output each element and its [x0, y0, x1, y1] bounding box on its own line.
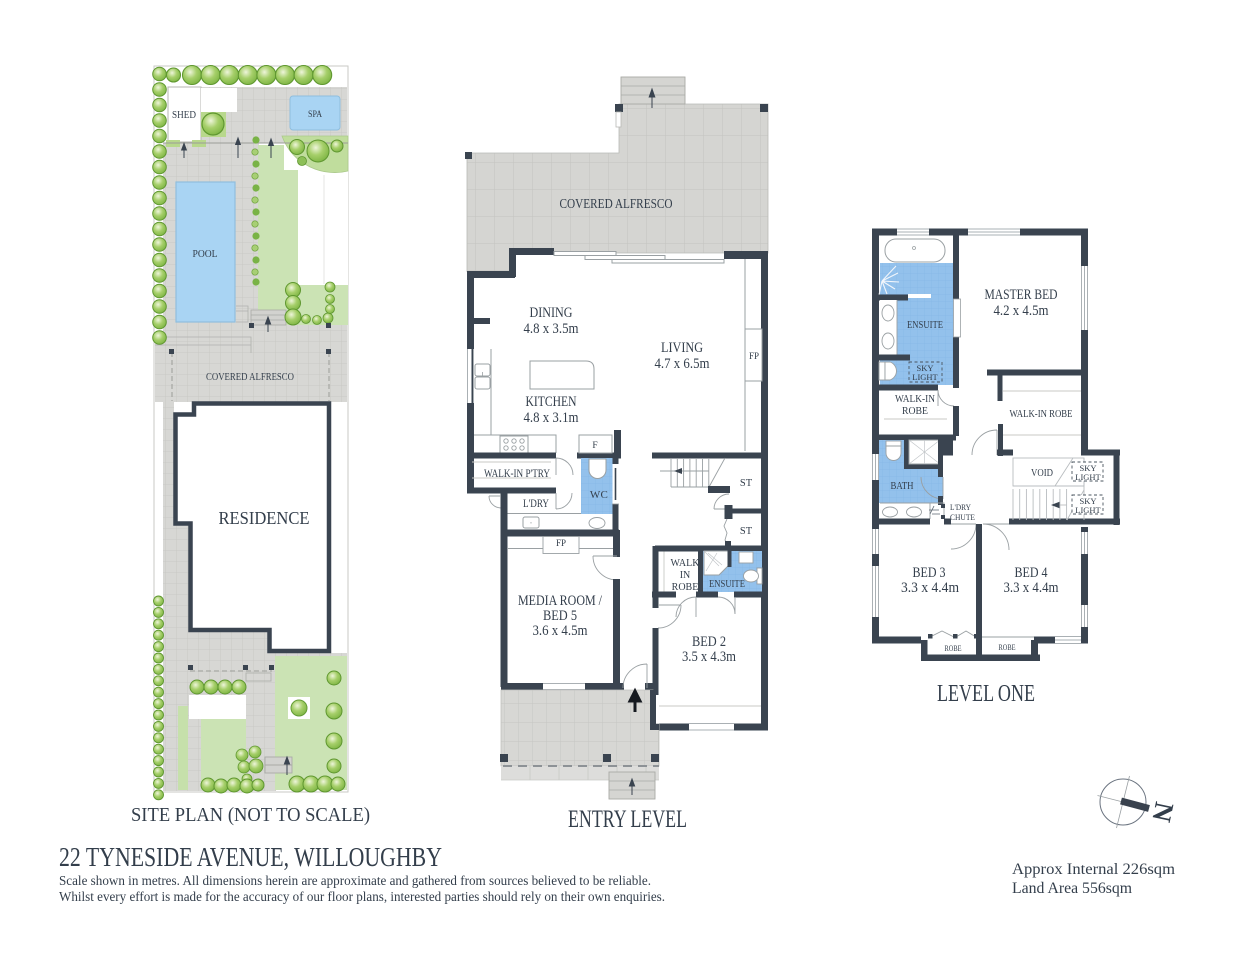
svg-text:ENSUITE: ENSUITE [907, 319, 943, 331]
svg-text:BATH: BATH [891, 480, 914, 492]
svg-text:4.8 x 3.1m: 4.8 x 3.1m [524, 410, 579, 426]
svg-text:BED 2: BED 2 [692, 634, 726, 650]
svg-text:SPA: SPA [308, 110, 322, 120]
svg-text:3.5 x 4.3m: 3.5 x 4.3m [682, 649, 736, 665]
svg-text:MASTER BED: MASTER BED [985, 287, 1058, 303]
svg-text:IN: IN [680, 570, 691, 581]
svg-text:ROBE: ROBE [672, 582, 699, 593]
svg-text:Land Area 556sqm: Land Area 556sqm [1012, 880, 1133, 897]
svg-text:FP: FP [749, 351, 759, 361]
svg-text:ENSUITE: ENSUITE [709, 579, 745, 590]
svg-text:Whilst every effort is made fo: Whilst every effort is made for the accu… [59, 890, 665, 905]
svg-text:Approx Internal 226sqm: Approx Internal 226sqm [1012, 861, 1176, 878]
svg-text:WALK-IN: WALK-IN [895, 394, 935, 405]
svg-text:MEDIA ROOM /: MEDIA ROOM / [518, 593, 603, 609]
svg-text:F: F [592, 441, 597, 451]
svg-text:ST: ST [740, 526, 753, 537]
svg-text:VOID: VOID [1031, 467, 1053, 479]
svg-text:Scale shown in metres. All dim: Scale shown in metres. All dimensions he… [59, 874, 651, 889]
svg-text:COVERED ALFRESCO: COVERED ALFRESCO [206, 372, 294, 383]
svg-text:POOL: POOL [193, 249, 218, 260]
svg-text:LIVING: LIVING [661, 340, 703, 356]
svg-text:BED 4: BED 4 [1015, 565, 1048, 581]
svg-text:3.6 x 4.5m: 3.6 x 4.5m [533, 623, 588, 639]
svg-text:DINING: DINING [530, 305, 573, 321]
svg-text:SITE PLAN (NOT TO SCALE): SITE PLAN (NOT TO SCALE) [131, 804, 370, 826]
svg-text:N: N [1146, 799, 1180, 825]
svg-text:COVERED ALFRESCO: COVERED ALFRESCO [560, 197, 673, 212]
svg-text:WALK-IN ROBE: WALK-IN ROBE [1010, 409, 1073, 420]
svg-text:ROBE: ROBE [945, 643, 962, 653]
svg-text:WALK-IN P'TRY: WALK-IN P'TRY [484, 468, 551, 480]
svg-text:KITCHEN: KITCHEN [526, 394, 577, 410]
svg-text:LEVEL ONE: LEVEL ONE [937, 680, 1035, 707]
svg-text:LIGHT: LIGHT [1075, 505, 1101, 515]
svg-text:L'DRY: L'DRY [950, 502, 971, 512]
svg-text:WALK: WALK [671, 558, 701, 569]
svg-text:4.2 x 4.5m: 4.2 x 4.5m [994, 303, 1049, 319]
svg-text:4.8 x 3.5m: 4.8 x 3.5m [524, 321, 579, 337]
svg-text:FP: FP [556, 538, 566, 548]
svg-text:ST: ST [740, 478, 753, 489]
svg-text:3.3 x 4.4m: 3.3 x 4.4m [901, 580, 959, 596]
svg-text:3.3 x 4.4m: 3.3 x 4.4m [1004, 580, 1059, 596]
svg-text:BED 3: BED 3 [913, 565, 946, 581]
svg-text:CHUTE: CHUTE [950, 512, 975, 522]
svg-text:BED 5: BED 5 [543, 608, 577, 624]
svg-text:ROBE: ROBE [999, 642, 1016, 652]
svg-text:22 TYNESIDE AVENUE, WILLOUGHBY: 22 TYNESIDE AVENUE, WILLOUGHBY [59, 842, 442, 872]
svg-text:RESIDENCE: RESIDENCE [219, 508, 310, 528]
svg-text:LIGHT: LIGHT [912, 372, 938, 382]
svg-text:ENTRY LEVEL: ENTRY LEVEL [568, 806, 687, 833]
svg-text:SHED: SHED [172, 110, 196, 121]
svg-text:LIGHT: LIGHT [1075, 472, 1101, 482]
svg-text:WC: WC [590, 489, 608, 501]
svg-text:4.7 x 6.5m: 4.7 x 6.5m [655, 356, 710, 372]
svg-text:ROBE: ROBE [902, 406, 928, 417]
svg-text:L'DRY: L'DRY [523, 498, 550, 510]
